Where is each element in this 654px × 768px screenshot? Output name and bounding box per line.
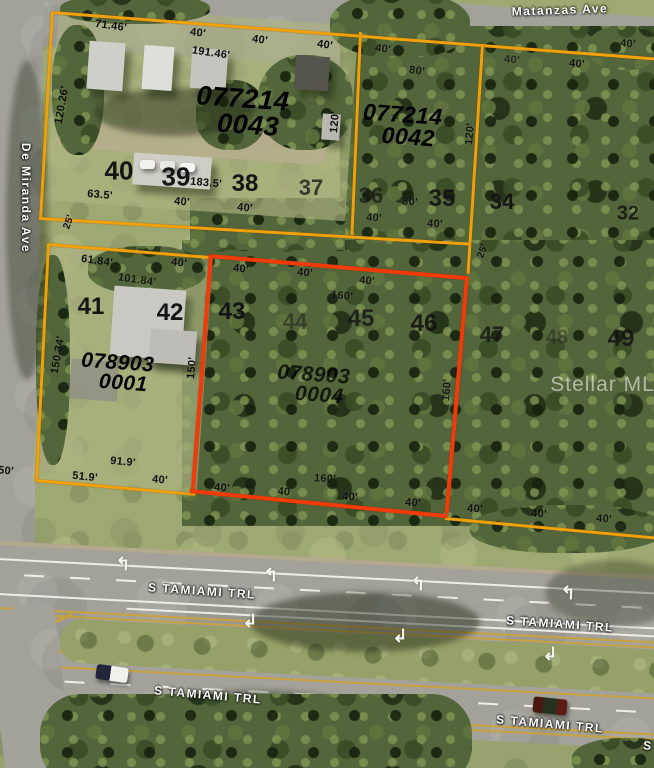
building-roof	[142, 45, 175, 91]
lot-number: 48	[546, 327, 568, 350]
dimension-label: 51.9'	[72, 470, 99, 485]
dimension-label: 150'	[185, 356, 199, 379]
parcel-id-line2: 0004	[282, 383, 356, 408]
dimension-label: 40'	[405, 496, 422, 509]
parcel-id: 077214 0043	[194, 83, 290, 141]
lot-number: 40	[105, 156, 134, 187]
turn-arrow-marking: ↰	[560, 584, 576, 603]
turn-arrow-marking: ↰	[263, 566, 279, 585]
dimension-label: 40'	[316, 38, 333, 52]
dimension-label: 40'	[152, 473, 169, 486]
red-car	[532, 696, 567, 715]
turn-arrow-marking: ↲	[542, 645, 557, 663]
building-roof-dark	[294, 55, 330, 91]
dimension-label: 120'	[328, 110, 342, 133]
dimension-label: 160'	[330, 289, 353, 303]
dimension-label: 40'	[214, 481, 231, 494]
dimension-label: 40'	[237, 201, 254, 214]
lot-number: 37	[299, 175, 323, 201]
dimension-label: 40'	[189, 26, 206, 40]
dimension-label: 40'	[531, 507, 548, 520]
dimension-label: 120'	[463, 122, 477, 145]
parcel-id-line2: 0001	[86, 371, 160, 396]
dimension-label: 40'	[366, 211, 383, 224]
dimension-label: 80'	[408, 64, 425, 78]
dimension-label: 25'	[61, 213, 76, 230]
median-tree-shadow	[250, 592, 480, 652]
lot-number: 36	[359, 183, 383, 209]
lot-number: 44	[283, 309, 307, 335]
aerial-parcel-map: 71.46'40'191.46'40'40'120.26'63.5'183.5'…	[0, 0, 654, 768]
dimension-label: 40'	[251, 33, 268, 47]
lot-number: 35	[429, 185, 456, 213]
dimension-label: 40'	[620, 37, 637, 50]
dimension-label: 50'	[0, 464, 14, 477]
dimension-label: 40'	[170, 256, 187, 270]
turn-arrow-marking: ↰	[410, 575, 426, 594]
turn-arrow-marking: ↰	[115, 555, 131, 574]
dimension-label: 160'	[440, 378, 454, 401]
lot-number: 49	[608, 325, 635, 353]
turn-arrow-marking: ↲	[242, 612, 257, 630]
parcel-id-line2: 0042	[368, 124, 449, 151]
dimension-label: 40'	[467, 502, 484, 515]
dimension-label: 40'	[233, 262, 250, 275]
lot-number: 45	[348, 305, 375, 333]
dimension-label: 40	[277, 486, 291, 499]
dimension-label: 80'	[402, 195, 419, 208]
dimension-label: 40'	[569, 57, 586, 70]
tree-cluster	[330, 0, 470, 58]
lot-number: 32	[617, 203, 639, 226]
lot-number: 42	[157, 299, 184, 327]
lot-number: 46	[411, 310, 438, 338]
lot-number: 34	[490, 189, 514, 215]
building-roof	[86, 41, 125, 91]
turn-arrow-marking: ↲	[392, 627, 407, 645]
dimension-label: 40'	[427, 217, 444, 230]
dimension-label: 40'	[342, 490, 359, 503]
dimension-label: 160'	[314, 472, 337, 486]
lot-number: 47	[480, 322, 504, 348]
dimension-label: 40'	[359, 274, 376, 287]
parked-car	[140, 160, 155, 169]
street-label: De Miranda Ave	[19, 143, 33, 253]
dimension-label: 40'	[374, 42, 391, 56]
lot-number: 38	[232, 170, 259, 198]
dimension-label: 40'	[297, 266, 314, 279]
parcel-id: 078903 0004	[275, 363, 351, 408]
lot-number: 43	[219, 298, 246, 326]
parcel-id: 078903 0001	[79, 351, 155, 396]
lot-number: 39	[162, 162, 191, 193]
dimension-label: 91.9'	[110, 455, 136, 469]
dimension-label: 63.5'	[87, 188, 113, 202]
lot-number: 41	[78, 293, 105, 321]
dimension-label: 40'	[504, 53, 521, 66]
mls-watermark: Stellar MLS	[550, 373, 654, 397]
dimension-label: 40'	[174, 195, 191, 208]
dimension-label: 40'	[596, 512, 613, 525]
parcel-id: 077214 0042	[361, 101, 444, 150]
